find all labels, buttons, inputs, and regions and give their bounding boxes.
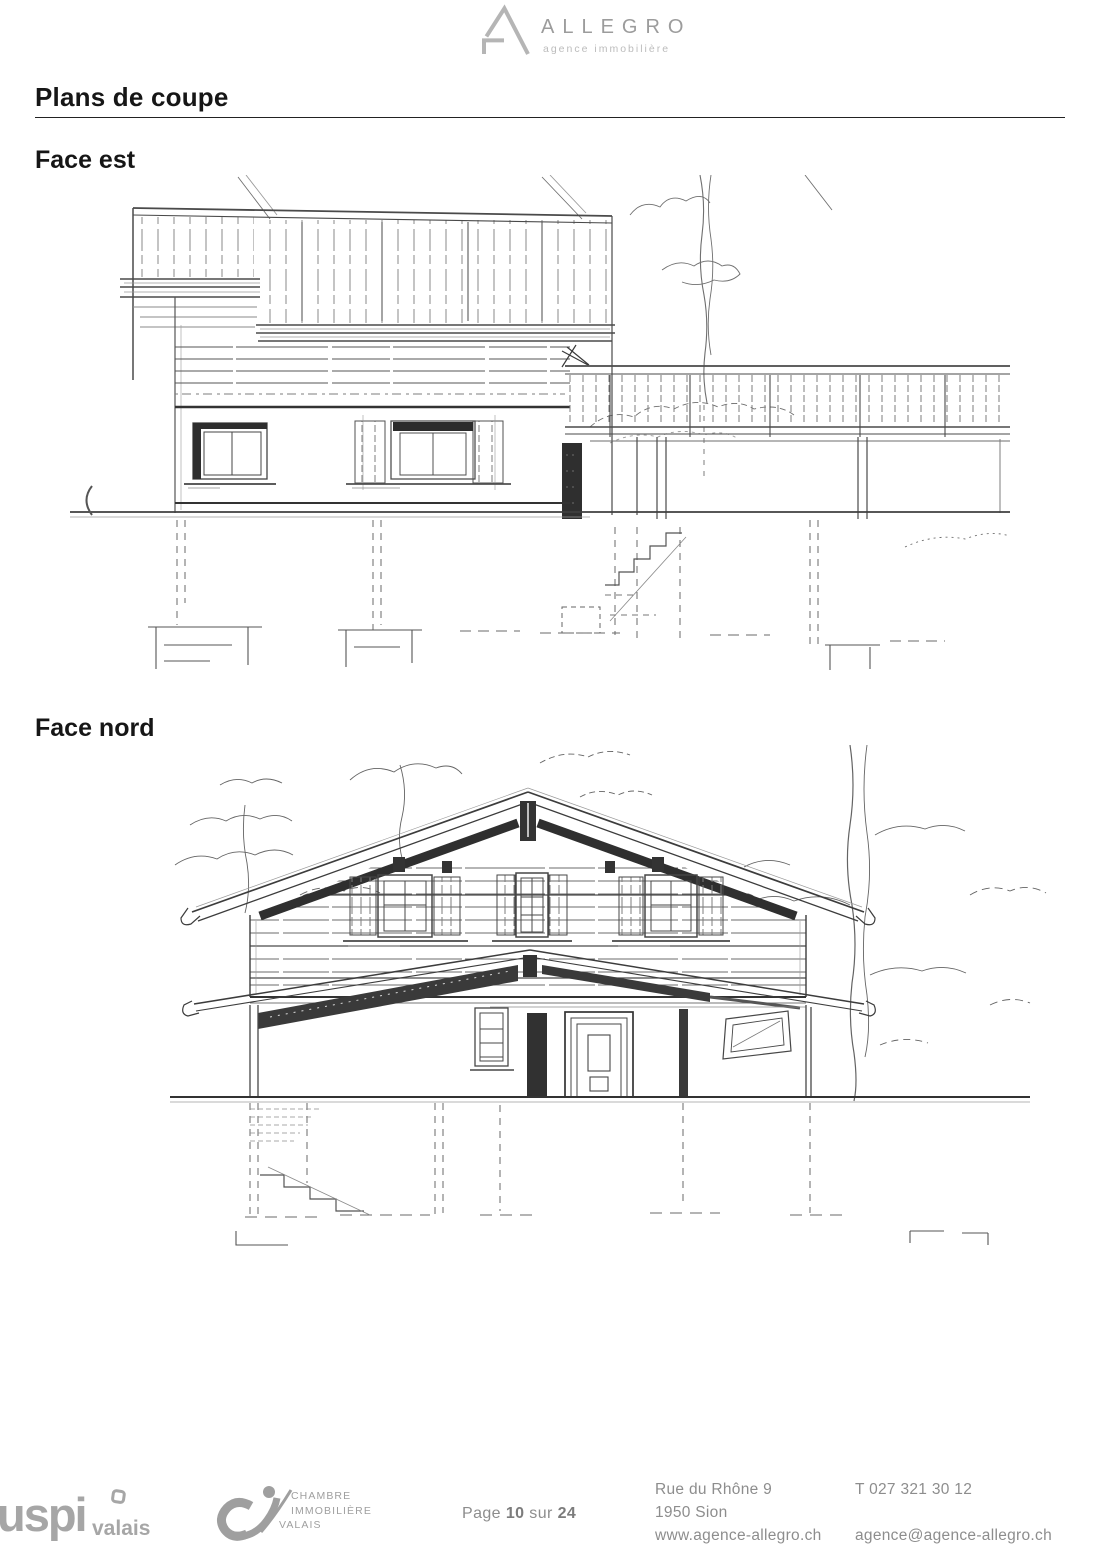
page-separator: sur xyxy=(529,1505,552,1522)
footing-marks xyxy=(148,627,880,670)
window-with-shutters xyxy=(346,415,511,490)
window-plain xyxy=(184,423,276,488)
brand-tagline: agence immobilière xyxy=(543,43,670,55)
address-city: 1950 Sion xyxy=(655,1501,822,1524)
page-indicator: Page 10 sur 24 xyxy=(462,1505,576,1523)
stairs-sketch xyxy=(260,1167,370,1215)
page-title: Plans de coupe xyxy=(35,82,229,113)
uspi-logo-text: uspi xyxy=(0,1488,86,1541)
brand-name: ALLEGRO xyxy=(541,16,691,39)
section-title-face-nord: Face nord xyxy=(35,714,154,743)
terrace-deck xyxy=(562,345,1010,519)
page-total: 24 xyxy=(558,1505,577,1522)
agency-address: Rue du Rhône 9 1950 Sion www.agence-alle… xyxy=(655,1478,822,1547)
ground-line xyxy=(170,1097,1030,1102)
allegro-triangle-logo-icon xyxy=(468,2,532,58)
address-website: www.agence-allegro.ch xyxy=(655,1524,822,1547)
foundation-sketch xyxy=(177,520,945,645)
ci-line-3: VALAIS xyxy=(279,1518,372,1533)
page-prefix: Page xyxy=(462,1505,501,1522)
contact-phone: T 027 321 30 12 xyxy=(855,1478,1052,1501)
north-elevation-drawing xyxy=(150,745,1050,1275)
ground-line xyxy=(70,486,1010,517)
uspi-valais-logo: uspi valais xyxy=(0,1487,160,1545)
page-current: 10 xyxy=(506,1505,525,1522)
contact-spacer xyxy=(855,1501,1052,1524)
upper-window-center xyxy=(492,873,572,941)
agency-contact: T 027 321 30 12 agence@agence-allegro.ch xyxy=(855,1478,1052,1547)
ground-floor xyxy=(250,1005,811,1097)
ci-swoosh-icon xyxy=(213,1484,293,1546)
contact-email: agence@agence-allegro.ch xyxy=(855,1524,1052,1547)
ci-logo-text: CHAMBRE IMMOBILIÈRE VALAIS xyxy=(291,1489,372,1533)
document-page: ALLEGRO agence immobilière Plans de coup… xyxy=(0,0,1100,1550)
east-elevation-drawing xyxy=(70,175,1010,695)
footing-marks xyxy=(236,1231,988,1245)
uspi-pin-icon xyxy=(112,1490,124,1502)
ci-line-2: IMMOBILIÈRE xyxy=(291,1504,372,1519)
address-street: Rue du Rhône 9 xyxy=(655,1478,822,1501)
ci-line-1: CHAMBRE xyxy=(291,1489,372,1504)
title-rule xyxy=(35,117,1065,118)
section-title-face-est: Face est xyxy=(35,146,135,175)
uspi-region-text: valais xyxy=(92,1517,150,1540)
stairs-sketch xyxy=(562,533,686,633)
